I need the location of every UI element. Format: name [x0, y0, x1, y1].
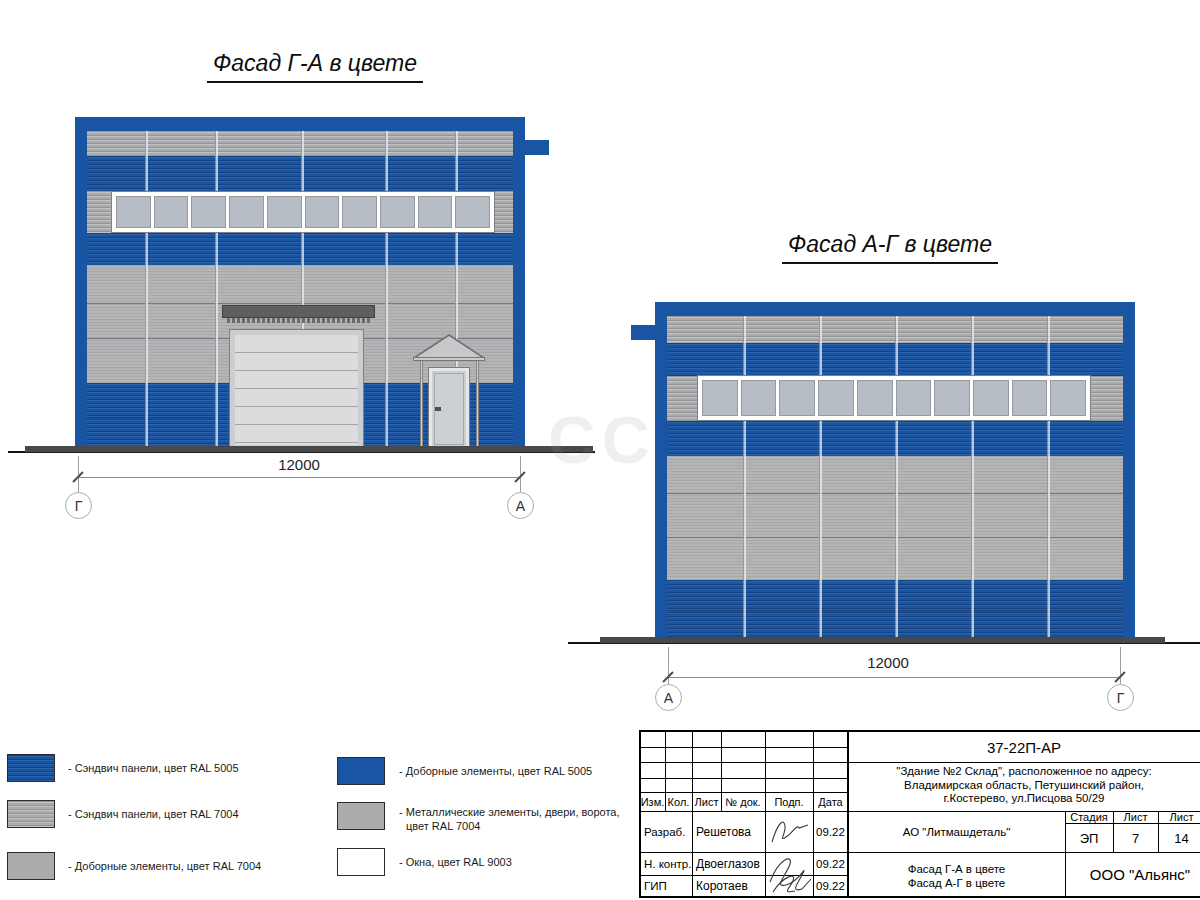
door-canopy-icon: [413, 333, 485, 359]
signature-nkontr-gip: [763, 848, 815, 896]
sectional-gate: [230, 330, 363, 450]
gate-awning-fringe: [227, 318, 370, 323]
ground-strip: [25, 446, 593, 453]
panel-joint: [1047, 316, 1050, 640]
project-address-line: Владимирская область, Петушинский район,: [848, 778, 1200, 792]
panel-joint: [895, 316, 898, 640]
facade-ga-title: Фасад Г-А в цвете: [165, 50, 465, 83]
window-pane: [1050, 380, 1086, 416]
window-pane: [116, 196, 151, 228]
column-header: Подп.: [765, 793, 813, 810]
facade-ag-title-text: Фасад А-Г в цвете: [782, 231, 998, 264]
column-header: Кол.: [665, 793, 692, 810]
dimension-value: 12000: [838, 654, 938, 671]
panel-stripe: [87, 156, 513, 191]
legend-label: - Металлические элементы, двери, ворота,: [399, 806, 620, 818]
ribbon-window: [111, 191, 495, 233]
drawing-title-line: Фасад А-Г в цвете: [848, 876, 1065, 889]
window-pane: [455, 196, 490, 228]
legend-swatch-ral7004-metal: [337, 802, 385, 830]
panel-stripe: [87, 131, 513, 156]
legend-label: - Доборные элементы, цвет RAL 7004: [68, 860, 261, 872]
window-pane: [305, 196, 340, 228]
canopy-post: [420, 361, 423, 450]
drawing-title-line: Фасад Г-А в цвете: [848, 862, 1065, 875]
legend-swatch-ral7004-panels: [7, 800, 55, 828]
panel-joint: [385, 131, 388, 450]
titleblock-border: [639, 730, 1200, 732]
window-pane: [1012, 380, 1048, 416]
legend-label: цвет RAL 7004: [406, 820, 480, 832]
dimension-line: [78, 477, 520, 478]
roof-tab: [631, 325, 655, 340]
window-pane: [267, 196, 302, 228]
titleblock-line: [640, 778, 848, 779]
window-pane: [934, 380, 970, 416]
column-header: № док.: [721, 793, 765, 810]
role-label: Н. контр.: [644, 852, 692, 875]
extension-line: [668, 647, 669, 684]
entrance-door: [429, 368, 469, 450]
column-header: Изм.: [640, 793, 665, 810]
axis-letter: Г: [75, 498, 83, 514]
facade-ag-title: Фасад А-Г в цвете: [740, 231, 1040, 264]
titleblock-border: [639, 730, 641, 898]
person-name: Коротаев: [696, 875, 764, 896]
dimension-value: 12000: [249, 456, 349, 473]
sheets-header: Лист: [1158, 811, 1200, 823]
facade-ga-title-text: Фасад Г-А в цвете: [207, 50, 423, 83]
person-name: Двоеглазов: [696, 852, 764, 875]
legend-swatch-ral5005-panels: [7, 754, 55, 782]
axis-bubble-a: А: [507, 492, 534, 519]
sheets-value: 14: [1158, 823, 1200, 853]
sheet-value: 7: [1113, 823, 1158, 853]
date-value: 09.22: [813, 852, 848, 875]
project-address-line: г.Костерево, ул.Писцова 50/29: [848, 791, 1200, 805]
titleblock-line: [640, 762, 1200, 763]
roof-tab: [525, 140, 549, 155]
person-name: Решетова: [696, 811, 764, 852]
legend-swatch-ral9003-windows: [337, 848, 385, 876]
legend-label: - Сэндвич панели, цвет RAL 7004: [68, 808, 239, 820]
doc-number: 37-22П-АР: [848, 735, 1200, 759]
window-pane: [818, 380, 854, 416]
legend-label: - Окна, цвет RAL 9003: [399, 856, 512, 868]
column-header: Дата: [813, 793, 848, 810]
panel-joint: [819, 316, 822, 640]
signature-razrab: [766, 812, 812, 850]
window-pane: [896, 380, 932, 416]
window-pane: [342, 196, 377, 228]
watermark: СС: [548, 402, 655, 478]
window-pane: [973, 380, 1009, 416]
facade-ga-drawing: [75, 117, 525, 450]
role-label: Разраб.: [644, 811, 692, 852]
date-value: 09.22: [813, 875, 848, 896]
legend-swatch-ral7004-trim: [7, 852, 55, 880]
legend-label: - Сэндвич панели, цвет RAL 5005: [68, 762, 239, 774]
window-pane: [191, 196, 226, 228]
sheet-header: Лист: [1113, 811, 1158, 823]
titleblock-line: [640, 747, 848, 748]
company-name: АО "Литмашдеталь": [848, 811, 1065, 852]
org-name: ООО "Альянс": [1065, 852, 1200, 897]
window-pane: [702, 380, 738, 416]
dimension-line: [668, 677, 1120, 678]
canopy-post: [476, 361, 479, 450]
role-label: ГИП: [644, 875, 692, 896]
door-canopy-fascia: [413, 357, 485, 361]
date-value: 09.22: [813, 811, 848, 852]
panel-joint: [215, 131, 218, 450]
panel-joint: [743, 316, 746, 640]
titleblock-line: [692, 731, 693, 897]
window-pane: [779, 380, 815, 416]
panel-joint: [971, 316, 974, 640]
axis-bubble-g: Г: [1107, 684, 1134, 711]
project-address-line: "Здание №2 Склад", расположенное по адре…: [848, 764, 1200, 778]
panel-joint: [145, 131, 148, 450]
window-pane: [418, 196, 453, 228]
panel-stripe: [87, 233, 513, 265]
ground-strip: [600, 637, 1165, 644]
window-pane: [741, 380, 777, 416]
extension-line: [1120, 647, 1121, 684]
window-pane: [857, 380, 893, 416]
gate-awning: [222, 305, 375, 318]
column-header: Лист: [692, 793, 721, 810]
axis-letter: А: [664, 690, 673, 706]
door-handle: [435, 407, 441, 411]
facade-ag-drawing: [655, 302, 1135, 640]
ribbon-window: [697, 375, 1091, 421]
axis-letter: Г: [1117, 690, 1125, 706]
axis-bubble-a: А: [655, 684, 682, 711]
legend-label: - Доборные элементы, цвет RAL 5005: [399, 765, 592, 777]
drawing-sheet: Фасад Г-А в цвете: [0, 0, 1200, 900]
window-pane: [154, 196, 189, 228]
stage-value: ЭП: [1065, 823, 1113, 853]
legend-swatch-ral5005-trim: [337, 757, 385, 785]
axis-bubble-g: Г: [65, 492, 92, 519]
window-pane: [229, 196, 264, 228]
window-pane: [380, 196, 415, 228]
axis-letter: А: [516, 498, 525, 514]
panel-seam: [87, 303, 513, 304]
stage-header: Стадия: [1065, 811, 1113, 823]
